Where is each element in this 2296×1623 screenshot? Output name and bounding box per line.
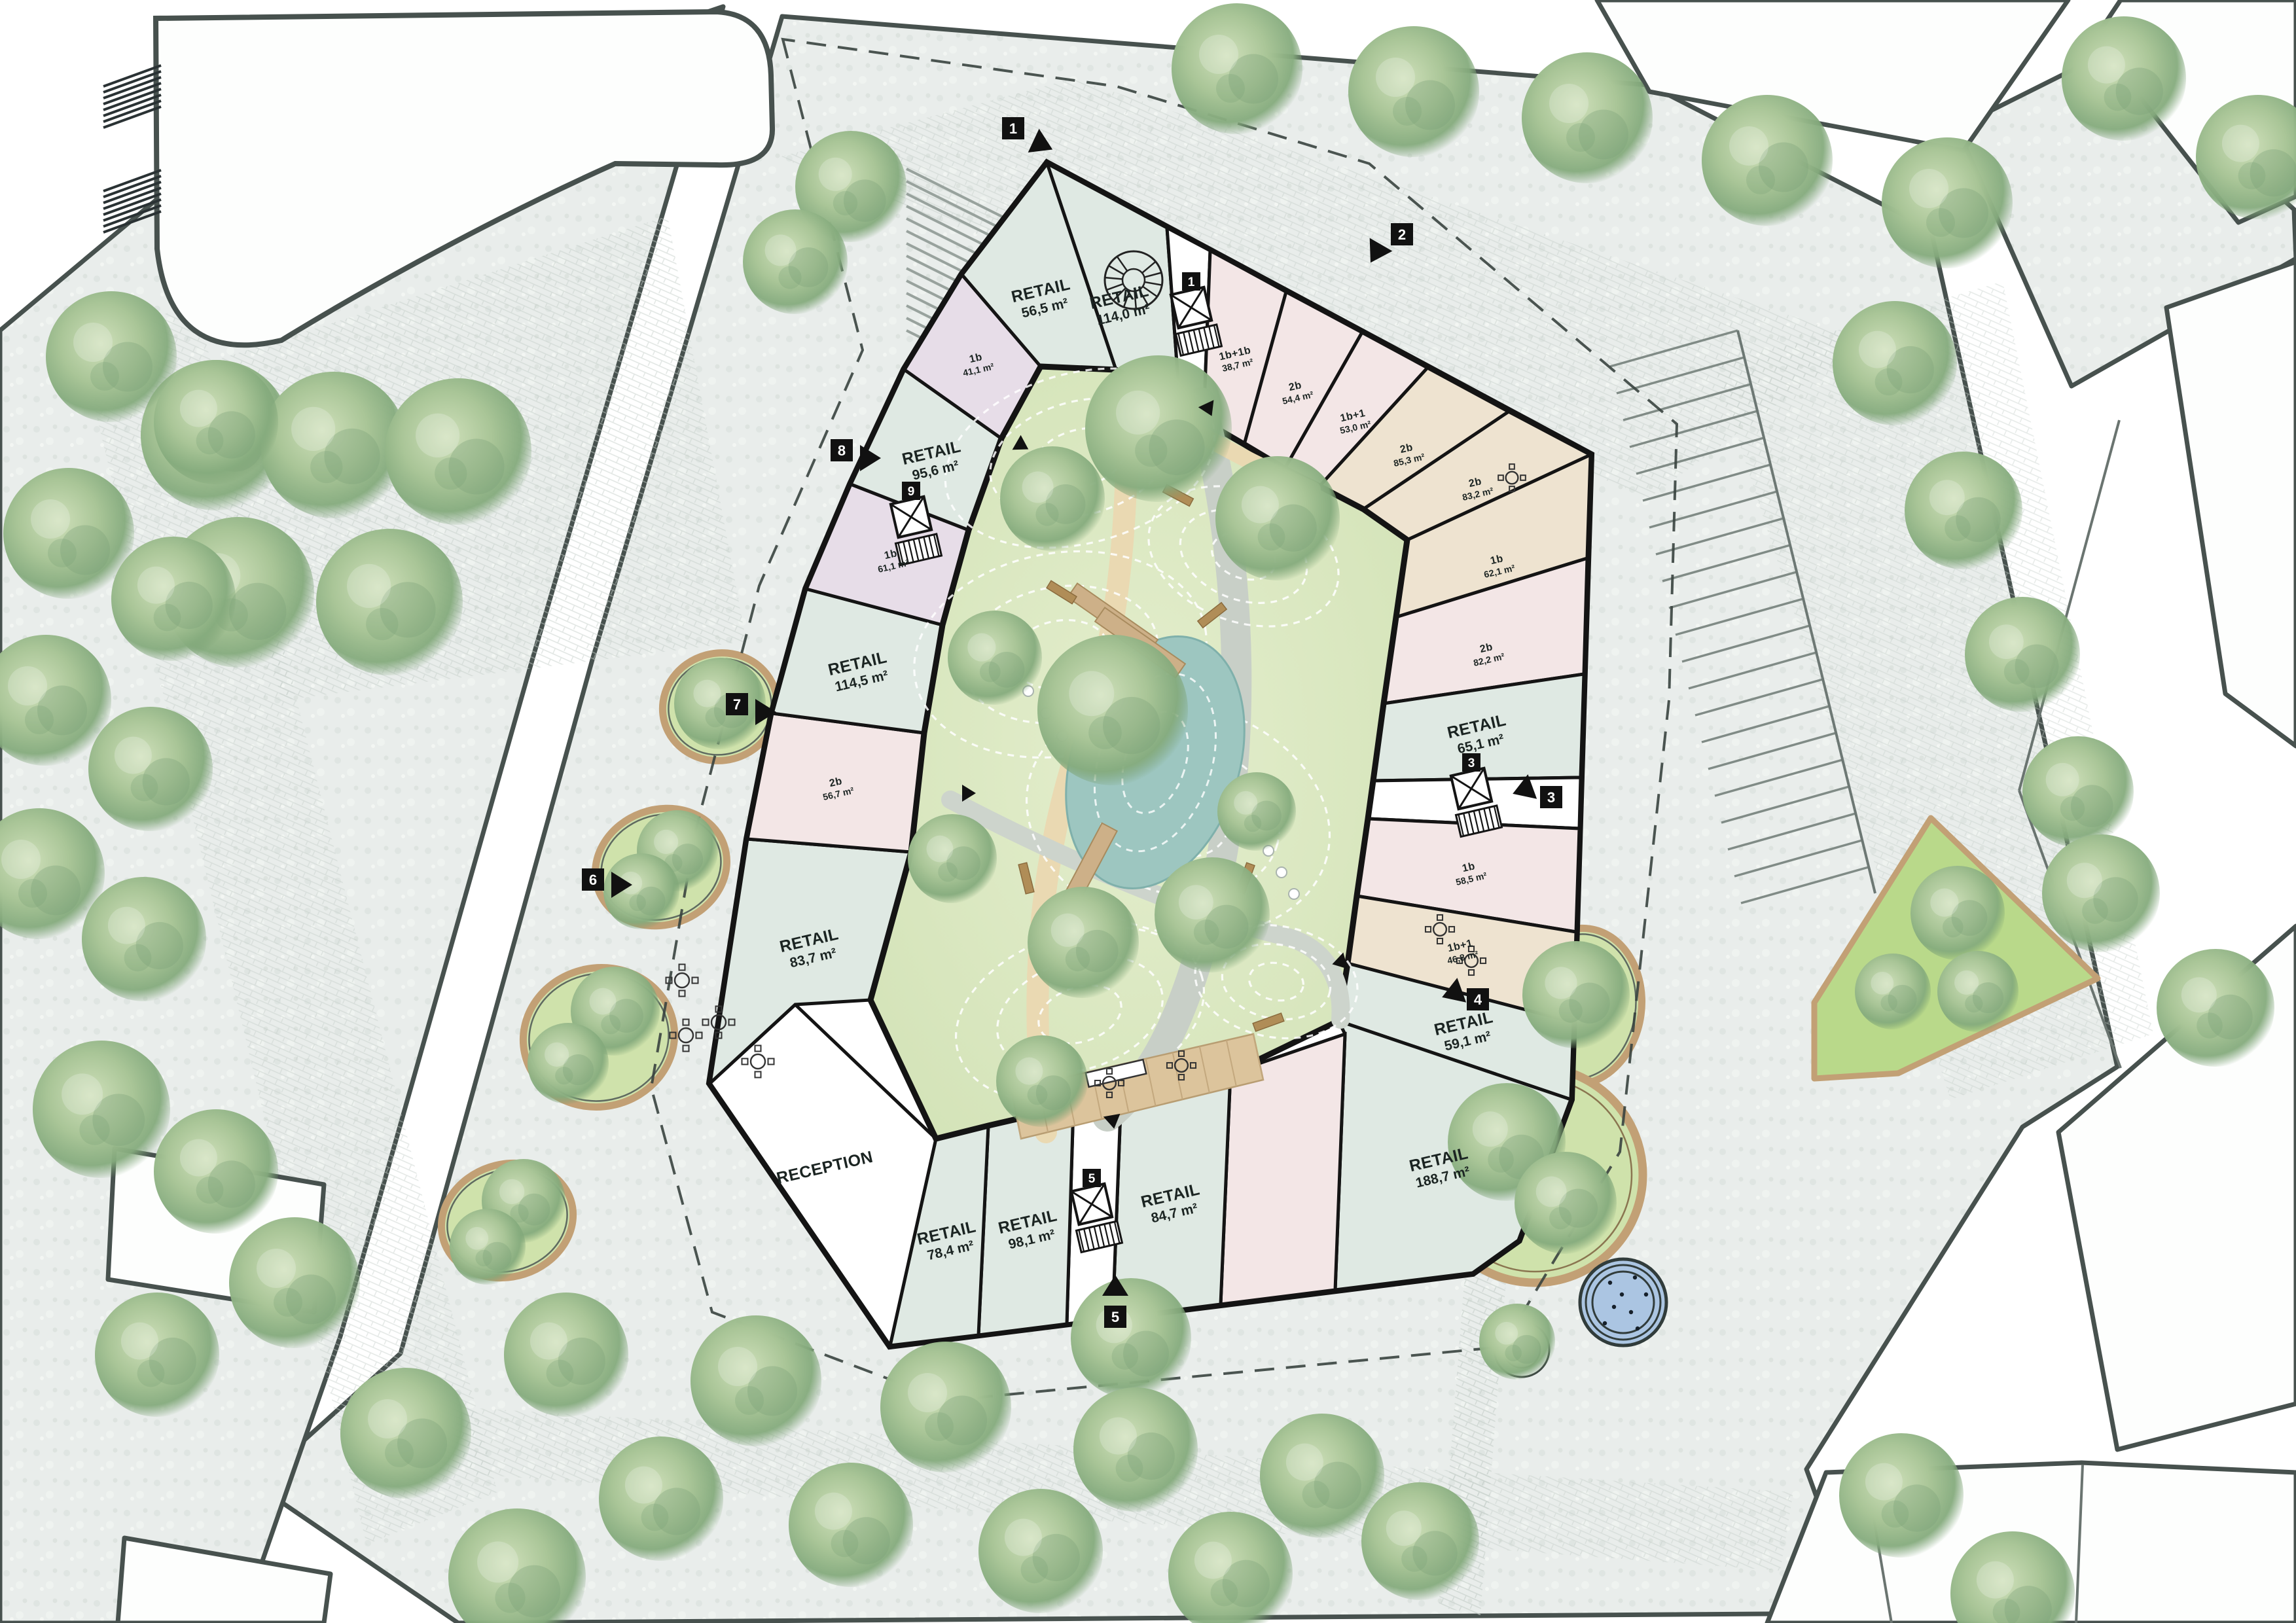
- tree: [316, 529, 463, 675]
- fountain-jet: [1608, 1281, 1612, 1285]
- tree: [1522, 941, 1630, 1048]
- tree: [1073, 1387, 1198, 1512]
- tree: [743, 209, 848, 314]
- crosswalk-hatch: [103, 77, 161, 98]
- tree: [1910, 866, 2005, 960]
- fountain-jet: [1636, 1327, 1640, 1330]
- stepping-stone: [1276, 867, 1287, 878]
- tree: [260, 372, 407, 518]
- entrance-marker-number: 8: [838, 442, 846, 459]
- tree: [1833, 301, 1957, 425]
- tree: [82, 877, 206, 1001]
- tree: [1172, 3, 1302, 134]
- tree: [340, 1368, 471, 1499]
- tree: [1071, 1278, 1191, 1399]
- entrance-marker-number: 6: [589, 872, 597, 888]
- crosswalk-hatch: [103, 71, 161, 92]
- tree: [599, 1436, 723, 1561]
- crosswalk-hatch: [103, 65, 161, 86]
- core-number-9: 9: [902, 482, 920, 500]
- tree: [1155, 857, 1270, 972]
- entrance-marker-number: 3: [1547, 789, 1555, 806]
- stepping-stone: [1289, 889, 1299, 899]
- tree: [111, 537, 236, 661]
- entrance-marker-number: 2: [1398, 226, 1406, 243]
- core-number-5: 5: [1083, 1169, 1101, 1187]
- svg-text:1: 1: [1188, 276, 1195, 289]
- fountain-jet: [1612, 1305, 1616, 1309]
- svg-text:5: 5: [1088, 1172, 1096, 1186]
- tree: [691, 1315, 821, 1446]
- tree: [674, 658, 766, 749]
- tree: [1515, 1152, 1617, 1254]
- tree: [1028, 887, 1139, 998]
- tree: [1905, 452, 2022, 569]
- tree: [789, 1463, 913, 1587]
- tree: [1702, 95, 1833, 226]
- tree: [450, 1209, 526, 1285]
- tree: [2022, 736, 2134, 847]
- svg-text:3: 3: [1468, 757, 1475, 770]
- svg-text:9: 9: [908, 485, 915, 499]
- tree: [2062, 16, 2186, 141]
- tree: [1937, 951, 2018, 1032]
- tree: [385, 378, 531, 525]
- tree: [1522, 52, 1653, 183]
- tree: [1000, 446, 1105, 551]
- fountain-layer: [1580, 1259, 1666, 1346]
- crosswalk-hatch: [103, 101, 161, 122]
- crosswalk-hatch: [103, 95, 161, 116]
- tree: [978, 1489, 1103, 1613]
- tree: [1348, 26, 1479, 157]
- tree: [1217, 772, 1296, 851]
- crosswalk-hatch: [103, 176, 161, 197]
- tree: [33, 1041, 170, 1178]
- site-plan-page: 123456781359 RETAIL114,0 m²RETAIL56,5 m²…: [0, 0, 2296, 1623]
- entrance-marker-number: 4: [1474, 991, 1482, 1008]
- tree: [1215, 456, 1340, 580]
- fountain-jet: [1644, 1293, 1648, 1296]
- core-number-1: 1: [1182, 272, 1200, 291]
- tree: [1965, 597, 2080, 712]
- core-number-3: 3: [1462, 753, 1480, 772]
- site-plan-drawing: 123456781359 RETAIL114,0 m²RETAIL56,5 m²…: [0, 0, 2296, 1623]
- tree: [154, 1109, 278, 1234]
- tree: [1037, 635, 1188, 785]
- crosswalk-hatch: [103, 182, 161, 203]
- crosswalk-hatch: [103, 170, 161, 191]
- fountain-jet: [1620, 1293, 1624, 1296]
- tree: [88, 707, 213, 831]
- tree: [154, 360, 278, 484]
- tree: [2157, 949, 2274, 1067]
- tree: [1085, 355, 1232, 502]
- crosswalk-hatch: [103, 89, 161, 110]
- tree: [1855, 954, 1931, 1029]
- tree: [1361, 1482, 1479, 1600]
- crosswalk-hatch: [103, 83, 161, 104]
- tree: [528, 1023, 609, 1104]
- fountain-jet: [1603, 1321, 1607, 1325]
- fountain-jet: [1629, 1310, 1633, 1314]
- tree: [1839, 1433, 1964, 1558]
- entrance-marker-number: 7: [733, 696, 741, 713]
- tree: [996, 1035, 1088, 1127]
- tree: [504, 1293, 628, 1417]
- city-block: [2166, 262, 2296, 746]
- tree: [229, 1217, 360, 1348]
- entrance-marker-number: 1: [1009, 120, 1017, 137]
- fountain-jet: [1633, 1275, 1637, 1279]
- tree: [948, 611, 1042, 705]
- tree: [1882, 137, 2013, 268]
- tree: [1479, 1304, 1555, 1380]
- tree: [908, 814, 997, 903]
- crosswalk-hatch: [103, 107, 161, 128]
- tree: [880, 1342, 1011, 1472]
- tree: [2042, 834, 2160, 952]
- entrance-marker-number: 5: [1111, 1309, 1119, 1325]
- fountain: [1580, 1259, 1666, 1346]
- tree: [95, 1293, 219, 1417]
